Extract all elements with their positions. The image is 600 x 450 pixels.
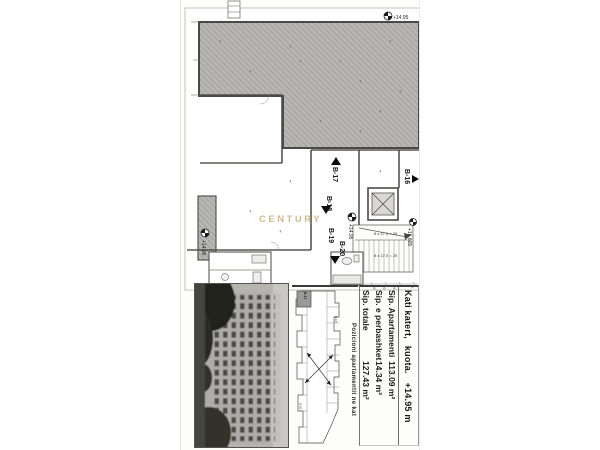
chimney-shaft — [228, 1, 240, 18]
svg-text:B-20: B-20 — [338, 241, 345, 256]
svg-text:+16.605: +16.605 — [406, 228, 412, 246]
area-value: 14.34 m² — [374, 361, 384, 395]
highlighted-unit-label: B-17 — [303, 292, 307, 299]
stair-note-lower: 8 x 17,5 = 29 — [374, 253, 398, 258]
svg-text:+14.95: +14.95 — [200, 240, 206, 256]
area-label: Sip. Apartamenti — [387, 290, 397, 357]
key-plan-label-2: B-18 — [334, 316, 338, 323]
key-plan-block: Pozicioni apartamentit ne kat B-17 B-18 … — [292, 285, 358, 446]
rotated-document-content: 8 x 17,5 = 29 8 x 17,5 = 29 — [181, 0, 420, 450]
key-plan-drawing: B-17 B-18 B-20 — [292, 287, 347, 448]
elevator-shaft — [368, 188, 398, 220]
footprint-outline — [296, 291, 340, 443]
table-row: Sip. totale 127.43 m² — [359, 287, 372, 445]
screenshot-canvas: 8 x 17,5 = 29 8 x 17,5 = 29 — [0, 0, 600, 450]
watermark-text: CENTURY — [259, 214, 322, 225]
area-value: 113.09 m² — [387, 361, 397, 399]
apartment-info-table: Kati katert, kuota. +14.95 m Sip. Aparta… — [359, 285, 419, 446]
floor-row: Kati katert, kuota. +14.95 m — [398, 287, 418, 445]
building-photo — [194, 283, 289, 448]
floor-plan-drawing: 8 x 17,5 = 29 8 x 17,5 = 29 — [181, 0, 420, 300]
area-label: Sip. e perbashket — [374, 290, 384, 360]
key-plan-label-3: B-20 — [299, 403, 303, 410]
svg-text:+14.95: +14.95 — [347, 224, 353, 240]
stair-note-upper: 8 x 17,5 = 29 — [374, 231, 398, 236]
area-label: Sip. totale — [361, 290, 371, 331]
floor-label: Kati katert, — [404, 290, 414, 339]
svg-text:B-16: B-16 — [403, 169, 410, 184]
scanned-page: 8 x 17,5 = 29 8 x 17,5 = 29 — [180, 0, 420, 450]
table-row: Sip. e perbashket 14.34 m² — [372, 287, 385, 445]
table-row: Sip. Apartamenti 113.09 m² — [385, 287, 398, 445]
floor-elevation-value: +14.95 m — [404, 383, 414, 423]
key-plan-caption: Pozicioni apartamentit ne kat — [350, 323, 356, 416]
svg-text:B-17: B-17 — [331, 167, 338, 182]
section-marker-b19: B-19 — [327, 228, 334, 243]
svg-text:B-18: B-18 — [325, 196, 332, 211]
svg-text:+14.95: +14.95 — [393, 15, 409, 21]
kitchen-fixtures — [209, 252, 271, 285]
area-value: 127.43 m² — [361, 361, 371, 400]
kuota-label: kuota. — [404, 346, 414, 374]
svg-text:B-19: B-19 — [327, 228, 334, 243]
photo-ground — [194, 283, 205, 448]
